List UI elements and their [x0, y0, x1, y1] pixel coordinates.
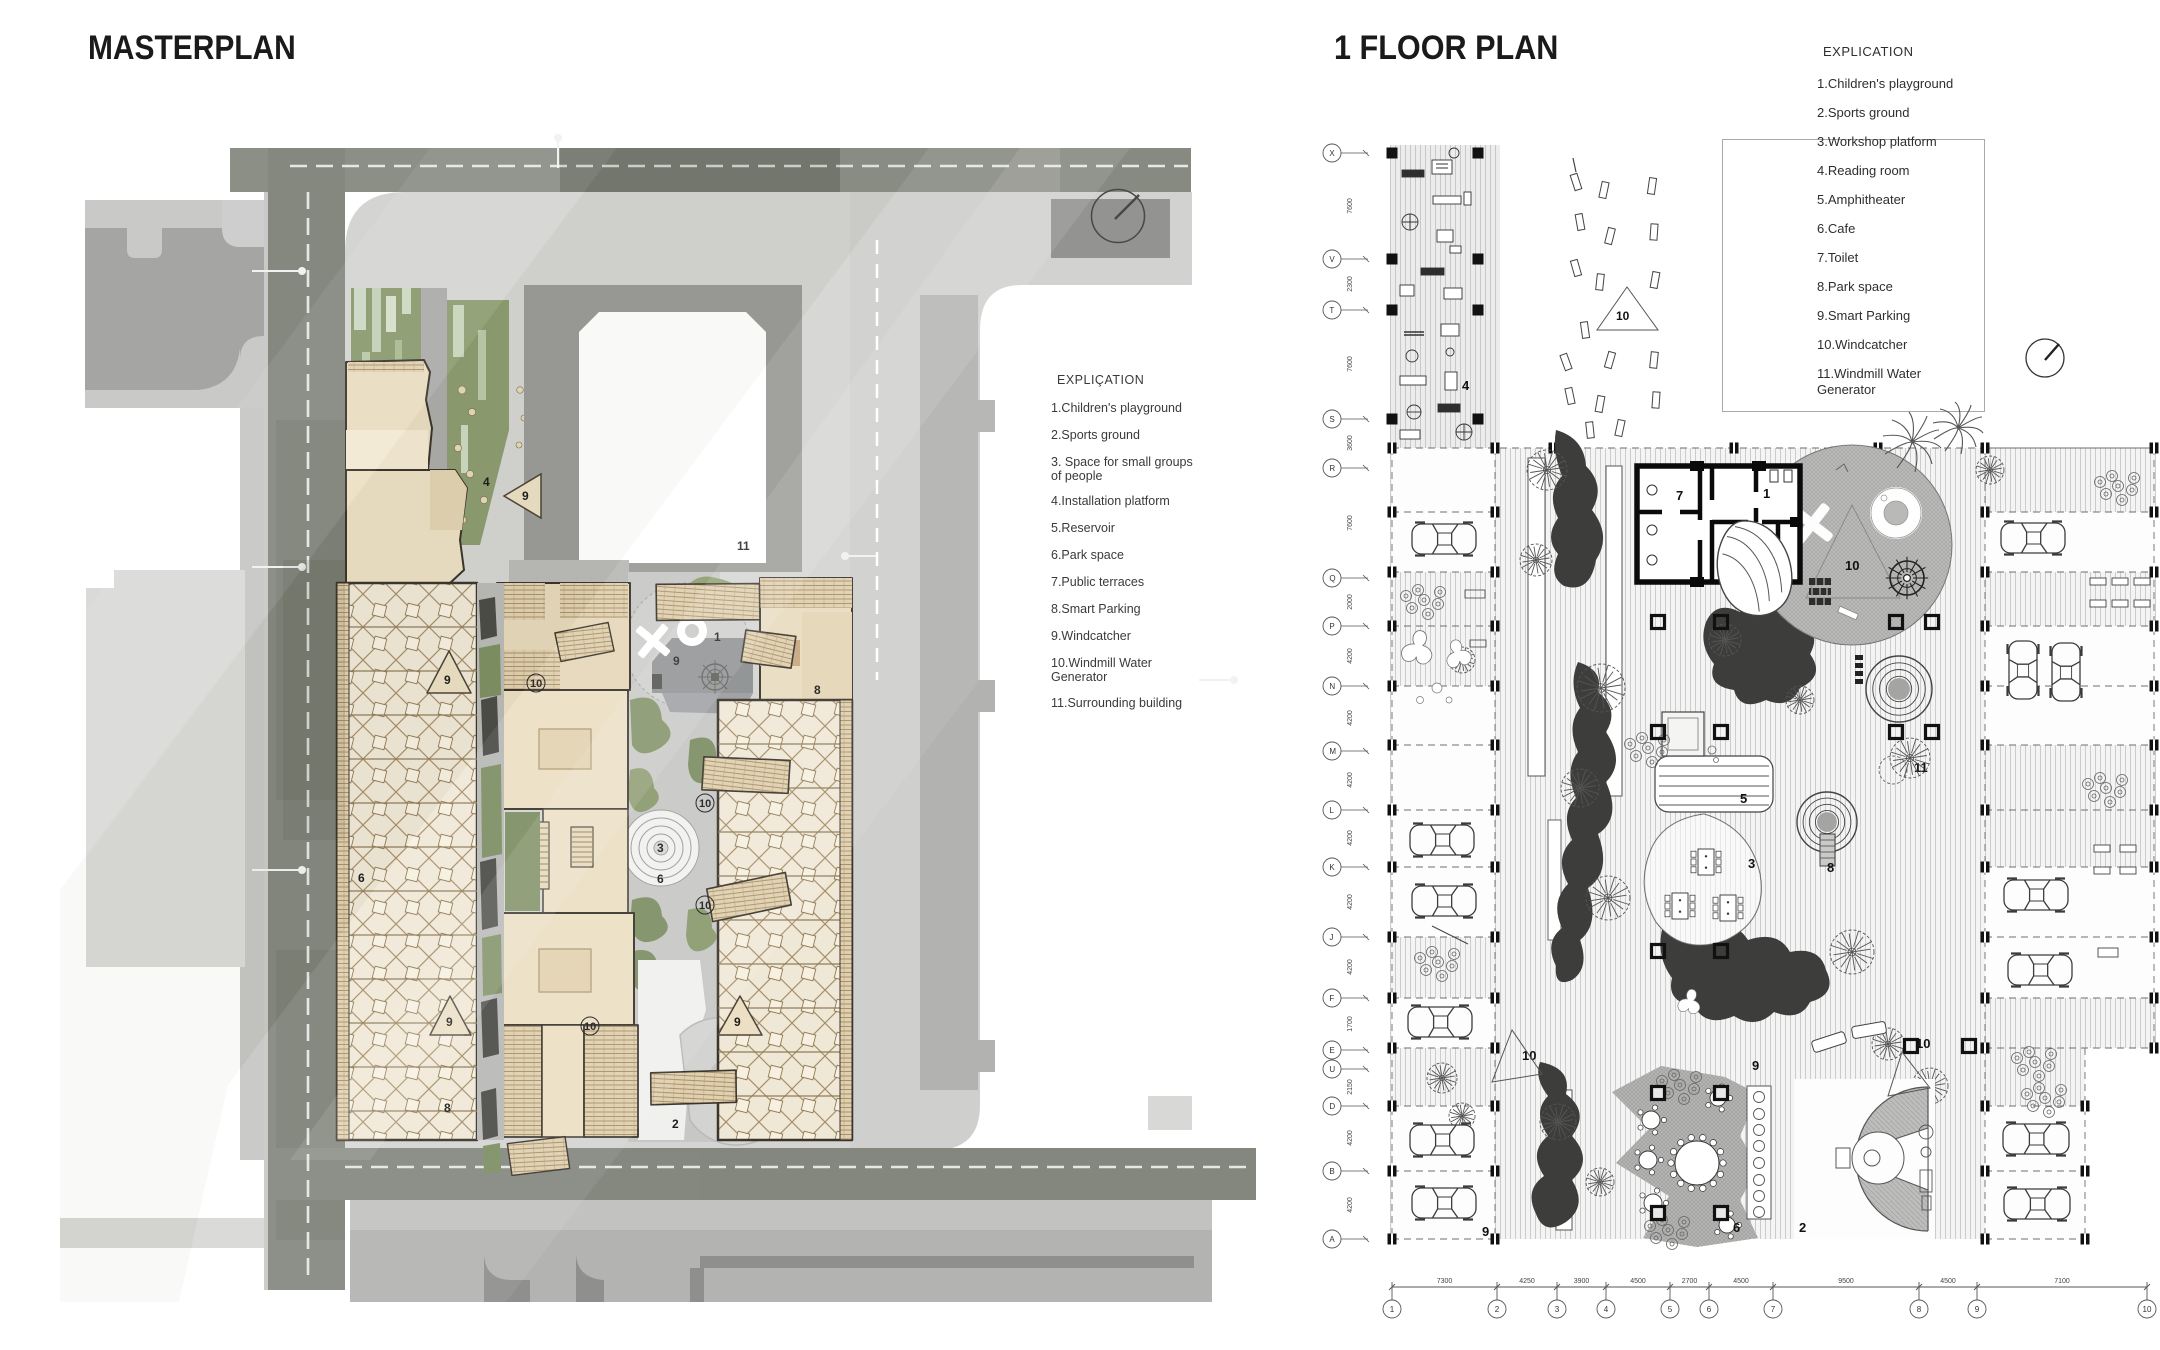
svg-text:V: V — [1329, 255, 1335, 264]
svg-text:4200: 4200 — [1347, 894, 1354, 910]
svg-text:10: 10 — [1916, 1036, 1930, 1051]
svg-text:10: 10 — [2143, 1305, 2152, 1314]
svg-text:3900: 3900 — [1574, 1278, 1590, 1285]
svg-text:2700: 2700 — [1682, 1278, 1698, 1285]
svg-text:2000: 2000 — [1347, 594, 1354, 610]
svg-text:9: 9 — [1975, 1305, 1980, 1314]
svg-text:5: 5 — [1668, 1305, 1673, 1314]
svg-text:S: S — [1329, 415, 1334, 424]
svg-text:U: U — [1329, 1065, 1335, 1074]
svg-text:P: P — [1329, 622, 1334, 631]
svg-text:L: L — [1329, 806, 1334, 815]
svg-text:4250: 4250 — [1519, 1278, 1535, 1285]
svg-text:2: 2 — [1495, 1305, 1500, 1314]
svg-text:B: B — [1329, 1167, 1334, 1176]
svg-text:10: 10 — [1616, 309, 1630, 323]
svg-text:4500: 4500 — [1733, 1278, 1749, 1285]
svg-text:2: 2 — [1799, 1220, 1806, 1235]
svg-text:4200: 4200 — [1347, 830, 1354, 846]
svg-text:9: 9 — [1482, 1224, 1489, 1239]
svg-text:4200: 4200 — [1347, 710, 1354, 726]
svg-text:9: 9 — [1752, 1058, 1759, 1073]
svg-text:N: N — [1329, 682, 1335, 691]
svg-text:1: 1 — [1763, 486, 1770, 501]
svg-text:2: 2 — [672, 1117, 679, 1131]
svg-text:7: 7 — [1771, 1305, 1776, 1314]
svg-text:2300: 2300 — [1347, 276, 1354, 292]
svg-text:J: J — [1329, 933, 1333, 942]
svg-text:F: F — [1329, 994, 1334, 1003]
svg-text:9: 9 — [734, 1015, 741, 1029]
svg-text:3: 3 — [1555, 1305, 1560, 1314]
svg-text:4200: 4200 — [1347, 1130, 1354, 1146]
svg-text:3600: 3600 — [1347, 435, 1354, 451]
svg-text:3: 3 — [1748, 856, 1755, 871]
svg-text:A: A — [1329, 1235, 1335, 1244]
svg-text:7600: 7600 — [1347, 198, 1354, 214]
svg-text:8: 8 — [1827, 860, 1834, 875]
svg-text:X: X — [1329, 149, 1335, 158]
svg-text:K: K — [1329, 863, 1335, 872]
svg-text:4200: 4200 — [1347, 772, 1354, 788]
svg-text:6: 6 — [1733, 1220, 1740, 1235]
svg-text:5: 5 — [1740, 791, 1747, 806]
svg-text:7300: 7300 — [1437, 1278, 1453, 1285]
svg-text:4200: 4200 — [1347, 959, 1354, 975]
svg-text:E: E — [1329, 1046, 1334, 1055]
svg-text:2150: 2150 — [1347, 1079, 1354, 1095]
svg-text:7600: 7600 — [1347, 356, 1354, 372]
svg-text:T: T — [1329, 306, 1334, 315]
svg-text:4500: 4500 — [1630, 1278, 1646, 1285]
svg-text:8: 8 — [1917, 1305, 1922, 1314]
svg-text:6: 6 — [1707, 1305, 1712, 1314]
svg-text:4200: 4200 — [1347, 648, 1354, 664]
svg-text:R: R — [1329, 464, 1335, 473]
svg-text:7: 7 — [1676, 488, 1683, 503]
svg-text:1: 1 — [1390, 1305, 1395, 1314]
svg-text:Q: Q — [1329, 574, 1335, 583]
svg-text:4500: 4500 — [1940, 1278, 1956, 1285]
svg-text:1700: 1700 — [1347, 1016, 1354, 1032]
svg-text:9500: 9500 — [1838, 1278, 1854, 1285]
svg-text:M: M — [1329, 747, 1336, 756]
svg-text:4: 4 — [1462, 378, 1470, 393]
svg-text:D: D — [1329, 1102, 1335, 1111]
svg-text:10: 10 — [1845, 558, 1859, 573]
svg-text:4200: 4200 — [1347, 1197, 1354, 1213]
svg-text:7100: 7100 — [2054, 1278, 2070, 1285]
svg-text:4: 4 — [1604, 1305, 1609, 1314]
svg-text:7600: 7600 — [1347, 515, 1354, 531]
